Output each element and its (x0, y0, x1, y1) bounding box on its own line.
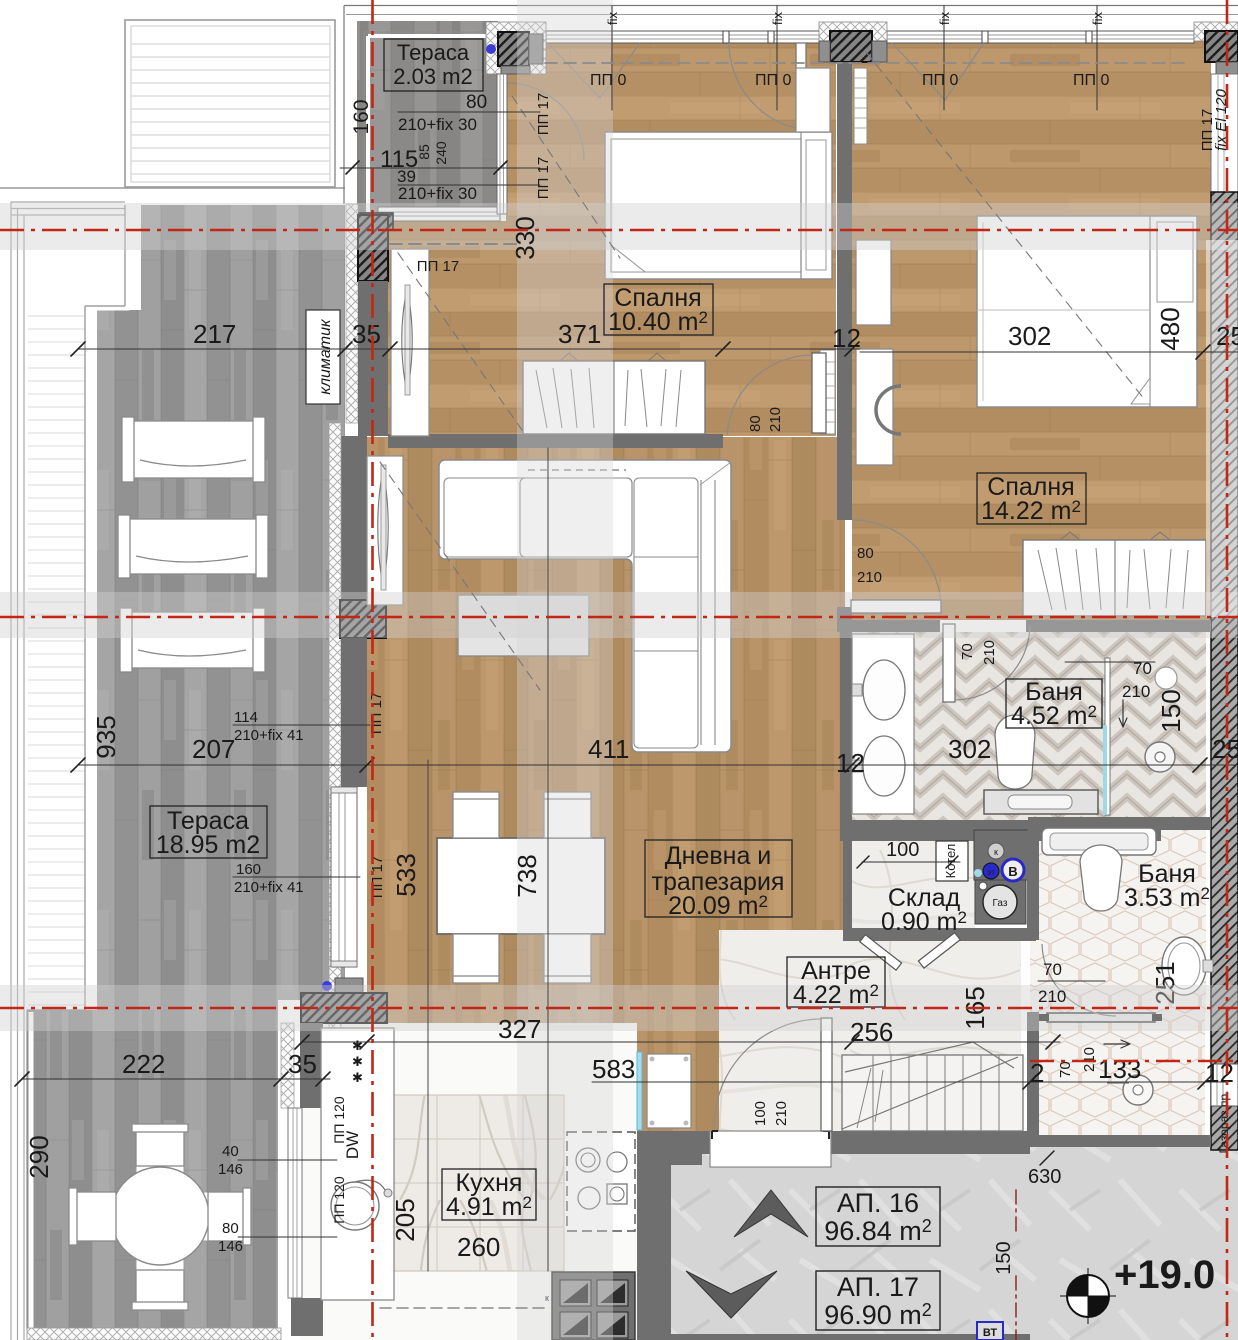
svg-text:2: 2 (1030, 1058, 1044, 1088)
svg-text:210: 210 (857, 569, 882, 586)
svg-text:ПП 17: ПП 17 (368, 692, 385, 734)
svg-text:ПП 120: ПП 120 (331, 1096, 347, 1144)
svg-text:ПП 0: ПП 0 (755, 72, 791, 89)
svg-text:133: 133 (1098, 1054, 1141, 1084)
svg-text:АП. 17: АП. 17 (837, 1272, 919, 1302)
svg-text:146: 146 (218, 1238, 243, 1255)
svg-text:40: 40 (222, 1143, 239, 1160)
svg-text:210: 210 (1081, 1047, 1098, 1072)
svg-text:Газ: Газ (993, 898, 1008, 909)
svg-text:ПП 17: ПП 17 (535, 93, 552, 135)
svg-text:327: 327 (498, 1014, 541, 1044)
svg-text:70: 70 (1043, 960, 1062, 979)
svg-text:114: 114 (234, 709, 258, 726)
svg-text:12: 12 (1205, 1058, 1234, 1088)
svg-text:100: 100 (886, 839, 919, 861)
svg-text:150: 150 (993, 1241, 1015, 1274)
svg-text:ПП 0: ПП 0 (590, 72, 626, 89)
svg-text:533: 533 (391, 853, 421, 896)
svg-text:210+fix 41: 210+fix 41 (234, 727, 304, 744)
svg-text:330: 330 (510, 216, 540, 259)
svg-text:302: 302 (1008, 321, 1051, 351)
svg-text:Тераса: Тераса (397, 40, 470, 65)
svg-text:480: 480 (1155, 307, 1185, 350)
svg-text:fix: fix (770, 12, 785, 26)
svg-text:935: 935 (91, 715, 121, 758)
svg-text:4.22 m2: 4.22 m2 (793, 981, 879, 1009)
svg-text:70: 70 (959, 643, 976, 660)
svg-text:климатик: климатик (317, 318, 334, 395)
svg-text:80: 80 (466, 92, 487, 113)
svg-text:Котел: Котел (943, 844, 958, 879)
svg-text:18.95 m2: 18.95 m2 (156, 831, 260, 859)
svg-text:+19.0: +19.0 (1114, 1253, 1215, 1297)
svg-text:290: 290 (24, 1135, 54, 1178)
svg-text:✱: ✱ (352, 1070, 363, 1085)
svg-text:к: к (994, 847, 998, 857)
svg-text:160: 160 (350, 99, 373, 134)
svg-text:207: 207 (192, 734, 235, 764)
svg-text:35: 35 (352, 319, 381, 349)
svg-text:210: 210 (767, 407, 784, 432)
svg-text:fix: fix (937, 12, 952, 26)
svg-text:ВТ: ВТ (983, 1327, 998, 1339)
svg-text:ПП 17: ПП 17 (535, 157, 552, 199)
svg-text:210: 210 (773, 1101, 790, 1126)
svg-text:100: 100 (752, 1101, 769, 1126)
svg-text:302: 302 (948, 734, 991, 764)
svg-text:25: 25 (1212, 734, 1238, 764)
svg-text:✱: ✱ (352, 1054, 363, 1069)
svg-text:ПП 17: ПП 17 (417, 258, 459, 275)
svg-text:70: 70 (1133, 659, 1152, 678)
svg-text:210: 210 (981, 640, 998, 665)
svg-text:fix: fix (1090, 12, 1105, 26)
svg-text:12: 12 (836, 748, 865, 778)
svg-text:2.03 m2: 2.03 m2 (393, 64, 473, 89)
svg-text:ПП 0: ПП 0 (922, 72, 958, 89)
svg-text:210: 210 (1038, 987, 1066, 1006)
svg-text:АП. 16: АП. 16 (837, 1188, 919, 1218)
svg-text:0.90 m2: 0.90 m2 (881, 908, 967, 936)
svg-text:10.40 m2: 10.40 m2 (608, 308, 708, 336)
svg-text:80: 80 (747, 415, 764, 432)
svg-text:210: 210 (1122, 682, 1150, 701)
svg-text:630: 630 (1028, 1166, 1061, 1188)
svg-text:✱: ✱ (352, 1038, 363, 1053)
svg-text:4.91 m2: 4.91 m2 (446, 1193, 532, 1221)
svg-text:14.22 m2: 14.22 m2 (981, 497, 1081, 525)
svg-text:20.09 m2: 20.09 m2 (668, 892, 768, 920)
svg-text:80: 80 (222, 1220, 239, 1237)
svg-text:210+fix 30: 210+fix 30 (398, 115, 477, 134)
svg-text:210+fix 41: 210+fix 41 (234, 879, 304, 896)
svg-text:В: В (1008, 864, 1017, 879)
svg-text:96.90 m2: 96.90 m2 (824, 1300, 932, 1330)
svg-text:Газораз пр.: Газораз пр. (1217, 1091, 1231, 1154)
svg-text:85: 85 (416, 144, 432, 160)
svg-text:217: 217 (193, 319, 236, 349)
svg-text:738: 738 (512, 854, 542, 897)
svg-text:80: 80 (857, 545, 874, 562)
svg-text:12: 12 (832, 323, 861, 353)
svg-text:160: 160 (236, 861, 261, 878)
svg-text:Дневна и: Дневна и (665, 842, 772, 870)
svg-text:ПП 120: ПП 120 (331, 1176, 347, 1224)
svg-text:3.53 m2: 3.53 m2 (1124, 884, 1210, 912)
svg-text:fix: fix (605, 12, 620, 26)
svg-text:ПП 0: ПП 0 (1073, 72, 1109, 89)
svg-text:35: 35 (288, 1049, 317, 1079)
svg-text:240: 240 (433, 141, 449, 165)
svg-text:583: 583 (592, 1054, 635, 1084)
svg-text:96.84 m2: 96.84 m2 (824, 1216, 932, 1246)
svg-text:эт: эт (987, 868, 995, 877)
svg-text:205: 205 (390, 1198, 420, 1241)
svg-text:222: 222 (122, 1049, 165, 1079)
svg-text:4.52 m2: 4.52 m2 (1011, 702, 1097, 730)
svg-text:411: 411 (588, 734, 629, 764)
svg-text:260: 260 (457, 1232, 500, 1262)
svg-text:256: 256 (850, 1017, 893, 1047)
svg-text:70: 70 (1057, 1061, 1074, 1078)
svg-text:146: 146 (218, 1161, 243, 1178)
svg-text:115: 115 (380, 146, 418, 173)
svg-text:150: 150 (1156, 689, 1186, 732)
svg-text:371: 371 (558, 319, 601, 349)
svg-text:210+fix 30: 210+fix 30 (398, 184, 477, 203)
